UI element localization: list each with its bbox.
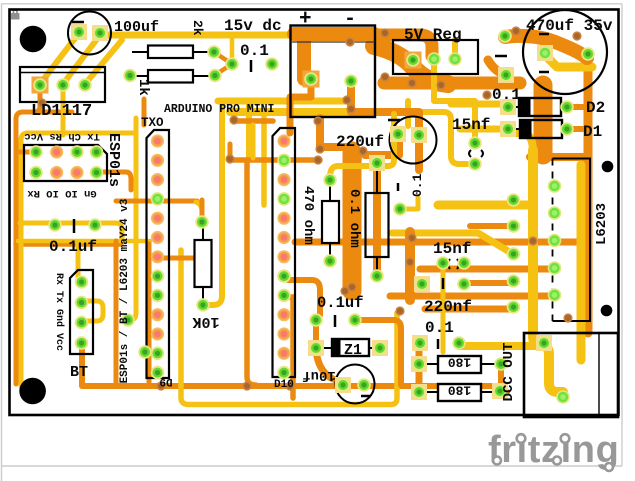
- svg-text:1k: 1k: [135, 79, 151, 96]
- svg-text:Tx Ch Rs Vcc: Tx Ch Rs Vcc: [24, 130, 100, 142]
- svg-text:220uf: 220uf: [336, 133, 384, 151]
- svg-text:0.1: 0.1: [492, 86, 521, 104]
- svg-text:Rx Tx Gnd Vcc: Rx Tx Gnd Vcc: [53, 273, 65, 351]
- svg-text:0.1uf: 0.1uf: [317, 294, 364, 312]
- svg-text:L6203: L6203: [594, 203, 610, 245]
- svg-text:180: 180: [448, 355, 472, 370]
- svg-text:10K: 10K: [192, 313, 219, 330]
- svg-text:D10: D10: [274, 379, 294, 391]
- svg-text:15v dc: 15v dc: [224, 17, 282, 35]
- svg-text:15nf: 15nf: [452, 116, 490, 134]
- svg-text:TXO: TXO: [141, 116, 164, 130]
- svg-text:0.1uf: 0.1uf: [49, 238, 97, 256]
- svg-text:Z1: Z1: [344, 342, 362, 359]
- svg-text:470uf 35v: 470uf 35v: [526, 17, 613, 35]
- svg-text:180: 180: [448, 383, 472, 398]
- svg-text:0.1: 0.1: [425, 319, 454, 337]
- svg-text:100uf: 100uf: [114, 19, 159, 36]
- svg-text:D2: D2: [586, 99, 605, 117]
- svg-text:ESP01s / BT / L6203 maY24 v3: ESP01s / BT / L6203 maY24 v3: [119, 198, 131, 383]
- svg-text:LD1117: LD1117: [31, 102, 92, 121]
- svg-text:470 ohm: 470 ohm: [300, 186, 316, 245]
- svg-text:5V Reg: 5V Reg: [404, 26, 462, 44]
- svg-text:0.1: 0.1: [410, 173, 425, 197]
- svg-text:-: -: [344, 8, 356, 31]
- svg-text:2k: 2k: [190, 20, 205, 36]
- svg-text:0.1 ohm: 0.1 ohm: [346, 189, 362, 248]
- svg-text:10uf: 10uf: [302, 367, 336, 383]
- svg-text:D1: D1: [583, 123, 602, 141]
- svg-text:BT: BT: [70, 364, 88, 381]
- svg-text:+: +: [299, 8, 312, 31]
- svg-text:ESP01s: ESP01s: [105, 133, 122, 187]
- svg-text:Gn IO IO Rx: Gn IO IO Rx: [27, 187, 97, 199]
- svg-text:15nf: 15nf: [433, 240, 471, 258]
- svg-text:ARDUINO PRO MINI: ARDUINO PRO MINI: [164, 103, 275, 116]
- svg-text:D9: D9: [159, 375, 172, 387]
- svg-text:DCC OUT: DCC OUT: [501, 343, 517, 402]
- svg-text:0.1: 0.1: [240, 42, 269, 60]
- svg-text:fritzing: fritzing: [488, 429, 619, 471]
- svg-text:220nf: 220nf: [424, 298, 472, 316]
